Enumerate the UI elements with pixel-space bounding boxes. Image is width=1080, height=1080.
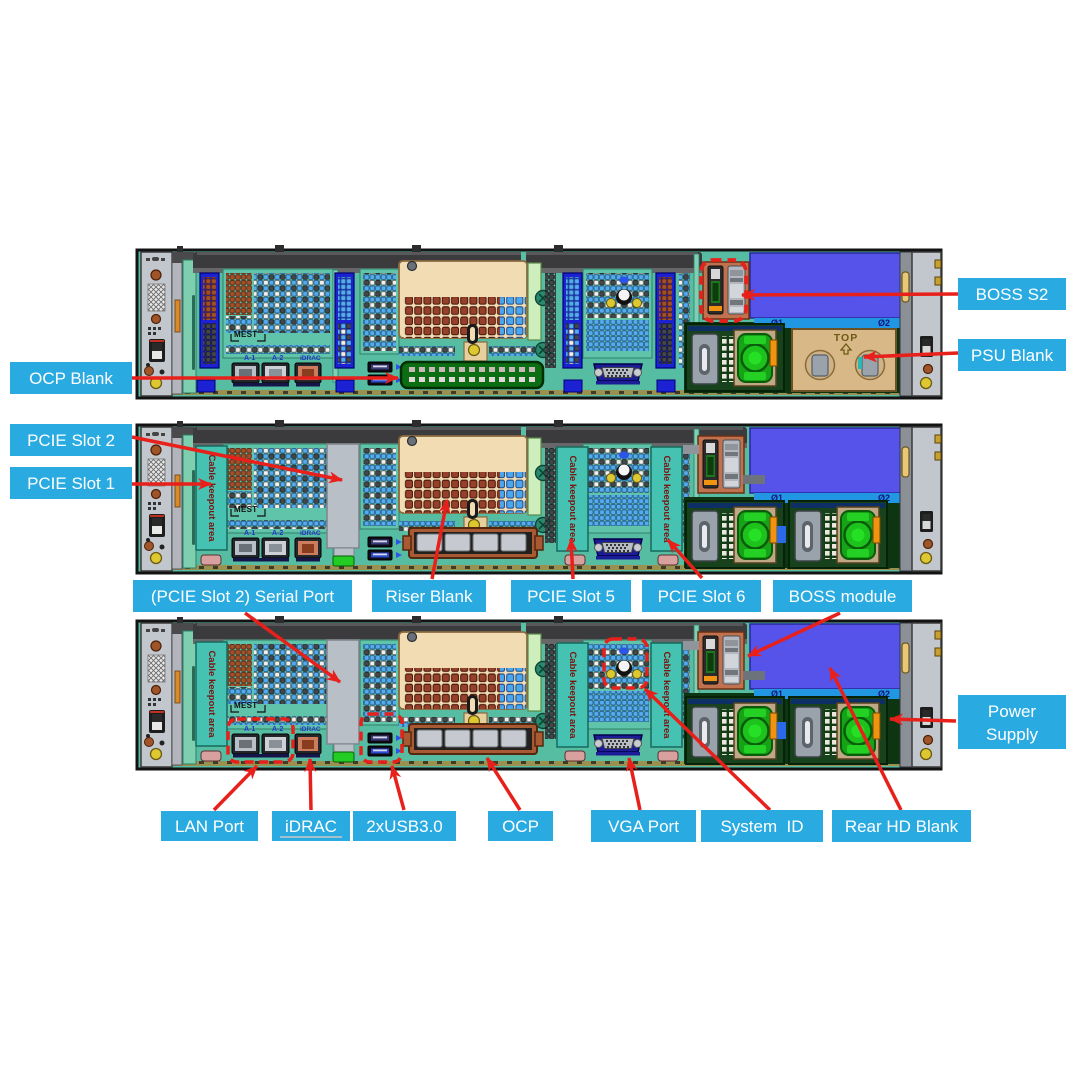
svg-text:iDRAC: iDRAC	[300, 530, 321, 537]
svg-text:iDRAC: iDRAC	[300, 355, 321, 362]
svg-text:(PCIE Slot 2) Serial Port: (PCIE Slot 2) Serial Port	[151, 587, 335, 606]
svg-text:VGA Port: VGA Port	[608, 817, 679, 836]
svg-text:Rear HD Blank: Rear HD Blank	[845, 817, 959, 836]
svg-text:BOSS S2: BOSS S2	[976, 285, 1049, 304]
svg-text:iDRAC: iDRAC	[300, 726, 321, 733]
svg-text:MEST: MEST	[234, 701, 257, 710]
svg-text:MEST: MEST	[234, 330, 257, 339]
svg-text:iDRAC: iDRAC	[285, 817, 337, 836]
svg-text:Power: Power	[988, 702, 1037, 721]
svg-text:LAN Port: LAN Port	[175, 817, 244, 836]
svg-text:BOSS module: BOSS module	[789, 587, 897, 606]
svg-text:OCP Blank: OCP Blank	[29, 369, 113, 388]
svg-text:Supply: Supply	[986, 725, 1038, 744]
svg-text:PCIE Slot 6: PCIE Slot 6	[658, 587, 746, 606]
svg-text:Riser Blank: Riser Blank	[386, 587, 473, 606]
svg-text:PSU Blank: PSU Blank	[971, 346, 1054, 365]
svg-text:PCIE Slot 2: PCIE Slot 2	[27, 431, 115, 450]
svg-text:System ID: System ID	[720, 817, 803, 836]
svg-text:Ø2: Ø2	[878, 318, 890, 328]
svg-text:PCIE Slot 5: PCIE Slot 5	[527, 587, 615, 606]
svg-text:PCIE Slot 1: PCIE Slot 1	[27, 474, 115, 493]
svg-text:MEST: MEST	[234, 505, 257, 514]
svg-text:2xUSB3.0: 2xUSB3.0	[366, 817, 443, 836]
svg-text:OCP: OCP	[502, 817, 539, 836]
